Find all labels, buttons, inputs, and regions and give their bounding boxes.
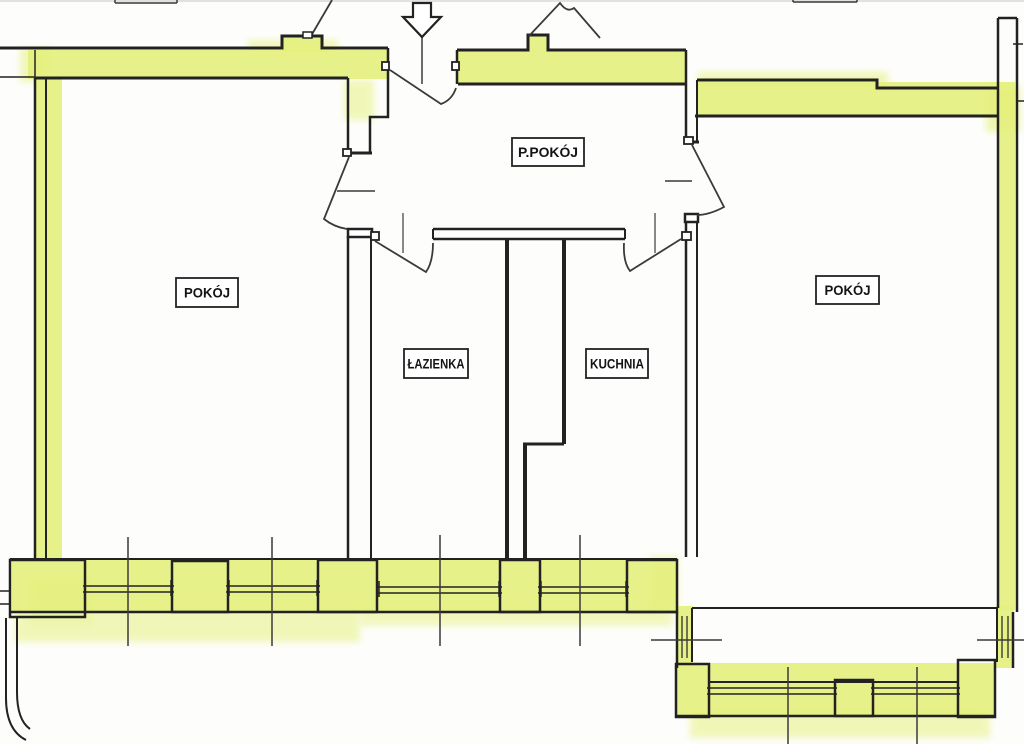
- stair-diagonal-right: [529, 3, 600, 38]
- door-frame-head-right-room: [685, 214, 698, 222]
- room-label-kuchnia: KUCHNIA: [586, 349, 648, 378]
- door-swing-left-room: [324, 157, 349, 229]
- jamb-entrance-left: [382, 62, 389, 70]
- room-label-ppokoj: P.POKÓJ: [512, 138, 584, 166]
- hinge-bath-door: [371, 232, 379, 240]
- door-swing-bath: [375, 241, 433, 272]
- room-label-pokoj-right: POKÓJ: [816, 276, 879, 304]
- jamb-entrance-right: [452, 62, 459, 70]
- hinge-kitchen-door: [682, 232, 691, 240]
- hl-bump-left: [282, 37, 322, 52]
- room-label-lazienka-text: ŁAZIENKA: [408, 356, 465, 372]
- scan-artifact-top: [0, 0, 1024, 2]
- plan-labels: P.POKÓJPOKÓJŁAZIENKAKUCHNIAPOKÓJ: [176, 138, 879, 378]
- hl-bay-left: [676, 606, 693, 668]
- hl-bump-mid: [528, 36, 548, 52]
- hl-top-mid-band: [458, 51, 686, 84]
- stair-door-tick: [303, 32, 312, 38]
- room-label-pokoj-right-text: POKÓJ: [825, 281, 871, 298]
- hl-left-wall: [36, 79, 62, 559]
- hl-right-wall: [999, 90, 1015, 610]
- entrance-arrow-icon: [403, 3, 441, 37]
- hl-bay-right: [996, 606, 1014, 668]
- plan-geometry: [0, 0, 1024, 744]
- wall-top-mid-outer: [457, 35, 686, 50]
- floor-plan-canvas: P.POKÓJPOKÓJŁAZIENKAKUCHNIAPOKÓJ: [0, 0, 1024, 744]
- floor-plan-page: P.POKÓJPOKÓJŁAZIENKAKUCHNIAPOKÓJ: [0, 0, 1024, 744]
- stair-diagonal-left: [311, 0, 332, 36]
- room-label-ppokoj-text: P.POKÓJ: [518, 143, 578, 160]
- room-label-kuchnia-text: KUCHNIA: [590, 356, 644, 372]
- door-swing-kitchen: [624, 239, 681, 271]
- room-label-lazienka: ŁAZIENKA: [404, 349, 468, 378]
- hinge-left-room-door: [343, 149, 351, 156]
- door-swing-entrance: [390, 70, 456, 104]
- wall-bath-kitchen-top-caps: [433, 229, 625, 239]
- room-label-pokoj-left-text: POKÓJ: [184, 284, 230, 301]
- hl-top-left-band: [28, 50, 388, 79]
- door-swing-right-room: [692, 145, 724, 215]
- room-label-pokoj-left: POKÓJ: [176, 278, 238, 307]
- door-frame-head-left-room: [348, 229, 372, 237]
- pier-corner-notch: [0, 591, 10, 604]
- hinge-right-room-door: [684, 137, 693, 144]
